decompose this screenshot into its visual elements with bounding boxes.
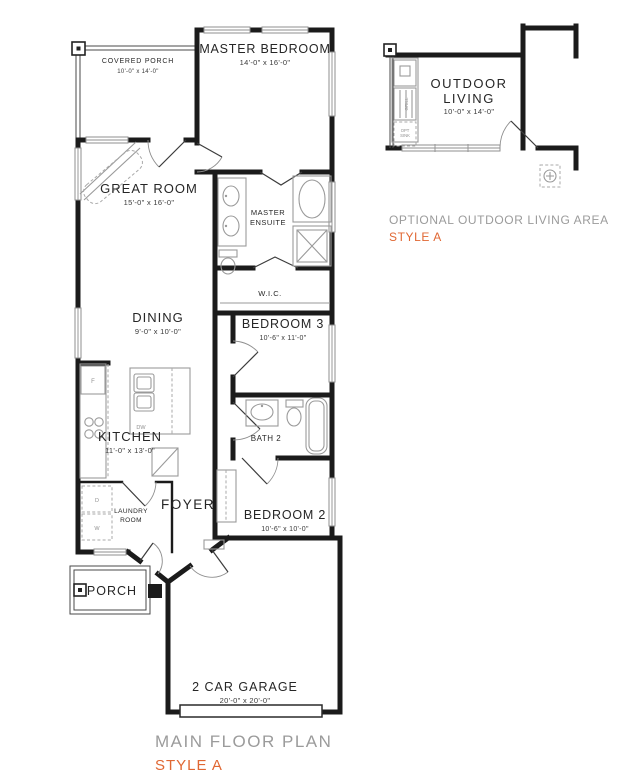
- label-outdoor-living-2: LIVING: [443, 91, 495, 106]
- label-opt-sink-2: SINK: [400, 133, 410, 138]
- label-kitchen-dims: 11'-0" x 13'-0": [105, 446, 155, 455]
- label-outdoor-living-dims: 10'-0" x 14'-0": [444, 107, 495, 116]
- island-sink-icon: [134, 374, 154, 411]
- main-plan-style: STYLE A: [155, 757, 223, 774]
- front-door-icon: [140, 543, 162, 574]
- label-garage-dims: 20'-0" x 20'-0": [220, 696, 271, 705]
- label-bedroom2-dims: 10'-6" x 10'-0": [261, 526, 309, 533]
- label-porch: PORCH: [87, 584, 137, 598]
- window-icon: [329, 182, 335, 232]
- sink-icon: [223, 216, 239, 236]
- window-icon: [75, 148, 81, 200]
- window-icon: [94, 549, 126, 555]
- optional-plan-style: STYLE A: [389, 230, 442, 244]
- main-floor-plan: COVERED PORCH 10'-0" x 14'-0" MASTER BED…: [70, 27, 340, 717]
- label-grill: GRILL: [404, 97, 409, 111]
- floor-plan-page: COVERED PORCH 10'-0" x 14'-0" MASTER BED…: [0, 0, 640, 782]
- range-burner-icon: [85, 418, 93, 426]
- door-laundry-icon: [122, 482, 156, 506]
- label-laundry-1: LAUNDRY: [114, 508, 148, 515]
- kitchen-fixtures: [80, 364, 190, 478]
- door-bedroom3-icon: [233, 341, 258, 377]
- label-fridge: F: [91, 379, 95, 385]
- label-bedroom3-dims: 10'-6" x 11'-0": [259, 335, 306, 342]
- label-master-ensuite-2: ENSUITE: [250, 218, 286, 227]
- shower-icon: [293, 226, 331, 266]
- label-wic: W.I.C.: [258, 289, 281, 298]
- window-icon: [204, 27, 250, 33]
- bathtub-icon: [306, 398, 327, 454]
- label-bedroom3: BEDROOM 3: [242, 317, 324, 331]
- covered-porch-outline: [72, 42, 197, 140]
- label-outdoor-living-1: OUTDOOR: [431, 76, 508, 91]
- bathtub-icon: [293, 176, 331, 222]
- window-icon: [262, 27, 308, 33]
- porch-post-core-icon: [77, 47, 81, 51]
- label-master-bedroom-dims: 14'-0" x 16'-0": [240, 58, 291, 67]
- label-foyer: FOYER: [161, 497, 215, 512]
- window-icon: [329, 52, 335, 116]
- door-master-bedroom-icon: [197, 143, 222, 172]
- windows: [75, 27, 335, 555]
- label-bath2: BATH 2: [251, 434, 281, 443]
- double-door-ensuite-icon: [260, 172, 302, 185]
- side-burner-icon: [394, 60, 416, 86]
- pilaster-icon: [148, 584, 162, 598]
- window-icon: [329, 325, 335, 382]
- label-kitchen: KITCHEN: [98, 429, 162, 444]
- double-door-wic-icon: [253, 257, 298, 268]
- vanity-sink-icon: [246, 400, 278, 426]
- label-laundry-2: ROOM: [120, 517, 142, 524]
- window-icon: [329, 478, 335, 526]
- label-bedroom2: BEDROOM 2: [244, 508, 326, 522]
- label-washer: W: [94, 526, 100, 532]
- sink-icon: [223, 186, 239, 206]
- window-icon: [86, 137, 128, 143]
- window-icon: [402, 144, 500, 152]
- optional-outdoor-living-plan: OUTDOOR LIVING 10'-0" x 14'-0" GRILL OPT…: [384, 26, 576, 187]
- garage-overhead-door-icon: [180, 705, 322, 717]
- label-master-bedroom: MASTER BEDROOM: [199, 42, 330, 56]
- door-garage-entry-icon: [190, 550, 228, 577]
- label-master-ensuite-1: MASTER: [251, 208, 285, 217]
- optional-plan-title: OPTIONAL OUTDOOR LIVING AREA: [389, 213, 609, 227]
- door-bedroom2-icon: [242, 458, 278, 484]
- door-outdoor-living-icon: [500, 121, 538, 148]
- label-great-room: GREAT ROOM: [100, 181, 198, 196]
- label-dryer: D: [95, 498, 99, 504]
- main-plan-title: MAIN FLOOR PLAN: [155, 732, 332, 751]
- floor-plan-drawing: COVERED PORCH 10'-0" x 14'-0" MASTER BED…: [0, 0, 640, 782]
- label-dishwasher: DW: [136, 425, 146, 431]
- bath2-fixtures: [246, 398, 327, 454]
- door-great-room-porch-icon: [148, 140, 186, 167]
- label-covered-porch-dims: 10'-0" x 14'-0": [117, 69, 158, 75]
- range-burner-icon: [85, 430, 93, 438]
- hose-fixture-icon: [540, 165, 560, 187]
- label-dining-dims: 9'-0" x 10'-0": [135, 327, 181, 336]
- window-icon: [75, 308, 81, 358]
- range-burner-icon: [95, 418, 103, 426]
- toilet-icon: [286, 400, 303, 426]
- label-great-room-dims: 15'-0" x 16'-0": [124, 198, 175, 207]
- porch-post-core-icon: [388, 48, 392, 52]
- label-dining: DINING: [132, 310, 184, 325]
- porch-post-core-icon: [78, 588, 82, 592]
- label-covered-porch: COVERED PORCH: [102, 58, 174, 65]
- label-garage: 2 CAR GARAGE: [192, 680, 298, 694]
